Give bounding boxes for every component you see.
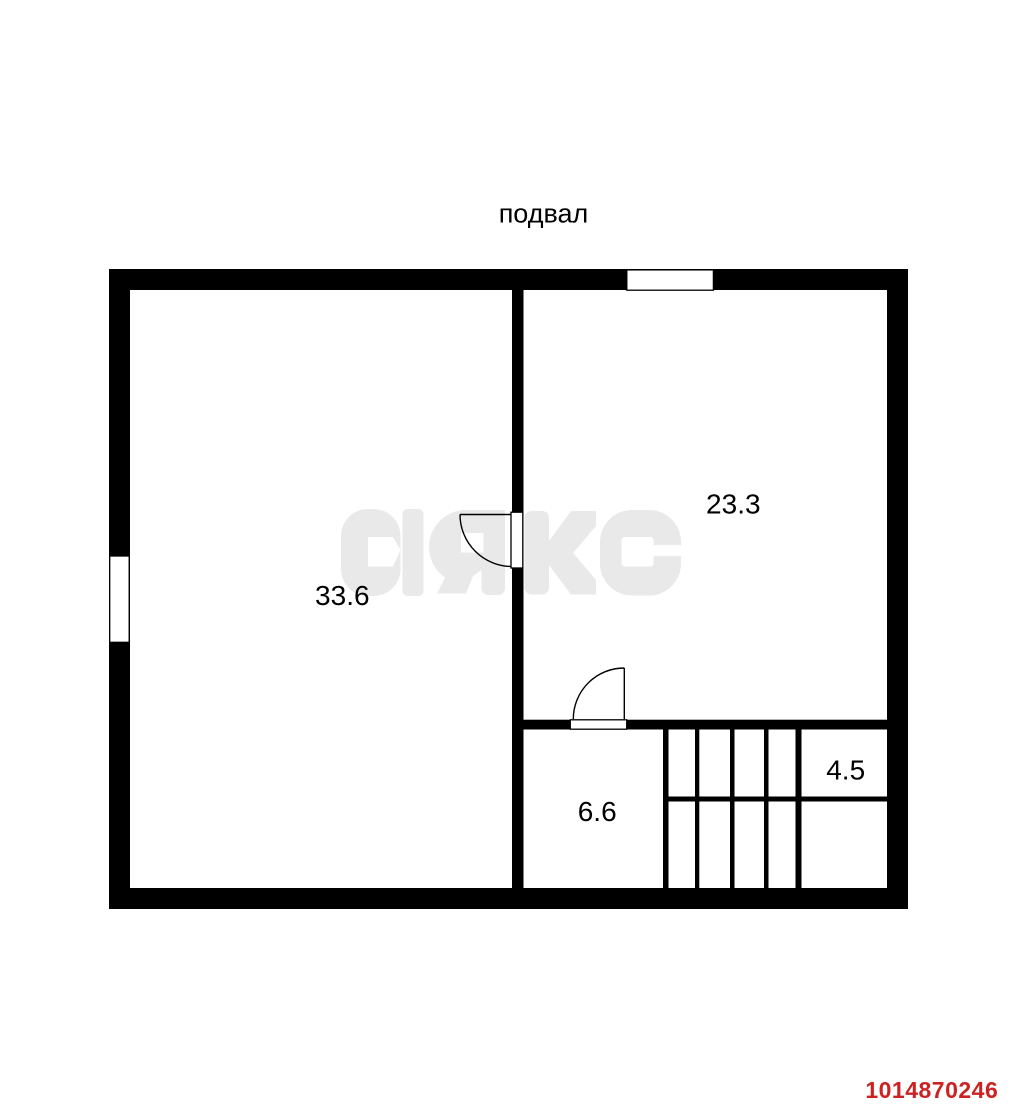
svg-text:6.6: 6.6 bbox=[578, 796, 617, 827]
svg-text:4.5: 4.5 bbox=[826, 755, 865, 786]
svg-text:33.6: 33.6 bbox=[315, 580, 370, 611]
svg-text:1014870246: 1014870246 bbox=[865, 1077, 998, 1103]
svg-text:подвал: подвал bbox=[499, 199, 589, 229]
svg-text:23.3: 23.3 bbox=[706, 489, 761, 520]
